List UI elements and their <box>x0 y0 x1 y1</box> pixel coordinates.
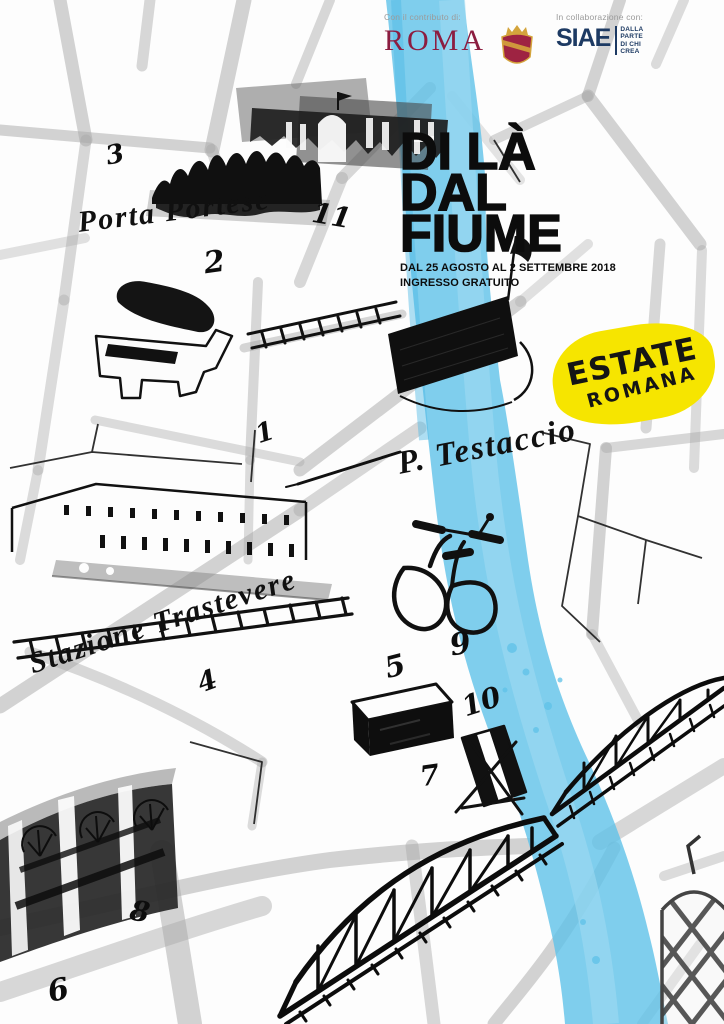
siae-logo: SIAE <box>556 26 610 50</box>
map-marker-2: 2 <box>202 247 227 280</box>
map-marker-7: 7 <box>418 761 441 791</box>
railway-track-illustration <box>244 302 402 348</box>
siae-tagline: DALLA PARTE DI CHI CREA <box>615 26 643 55</box>
collaboration-caption: In collaborazione con: <box>556 12 643 22</box>
event-poster: Con il contributo di: ROMA In collaboraz… <box>0 0 724 1024</box>
siae-tagline-line: DI CHI <box>620 41 643 48</box>
roma-logo: ROMA <box>384 25 486 57</box>
siae-tagline-line: PARTE <box>620 33 643 40</box>
piano-illustration <box>96 281 232 398</box>
siae-tagline-line: CREA <box>620 48 643 55</box>
event-dates: DAL 25 AGOSTO AL 2 SETTEMBRE 2018 <box>400 262 620 274</box>
admission-note: INGRESSO GRATUITO <box>400 277 620 289</box>
map-marker-11: 11 <box>310 199 353 233</box>
title-line-3: FIUME <box>400 212 620 253</box>
roma-crest-icon <box>500 23 534 69</box>
title-block: DI LÀ DAL FIUME DAL 25 AGOSTO AL 2 SETTE… <box>400 130 620 292</box>
header: Con il contributo di: ROMA In collaboraz… <box>384 12 724 82</box>
collaboration-block: In collaborazione con: SIAE DALLA PARTE … <box>556 12 643 55</box>
subtitle: DAL 25 AGOSTO AL 2 SETTEMBRE 2018 INGRES… <box>400 262 620 289</box>
stage-box-illustration <box>352 684 454 756</box>
contributor-block: Con il contributo di: ROMA <box>384 12 534 69</box>
siae-tagline-line: DALLA <box>620 26 643 33</box>
contributor-caption: Con il contributo di: <box>384 12 534 22</box>
